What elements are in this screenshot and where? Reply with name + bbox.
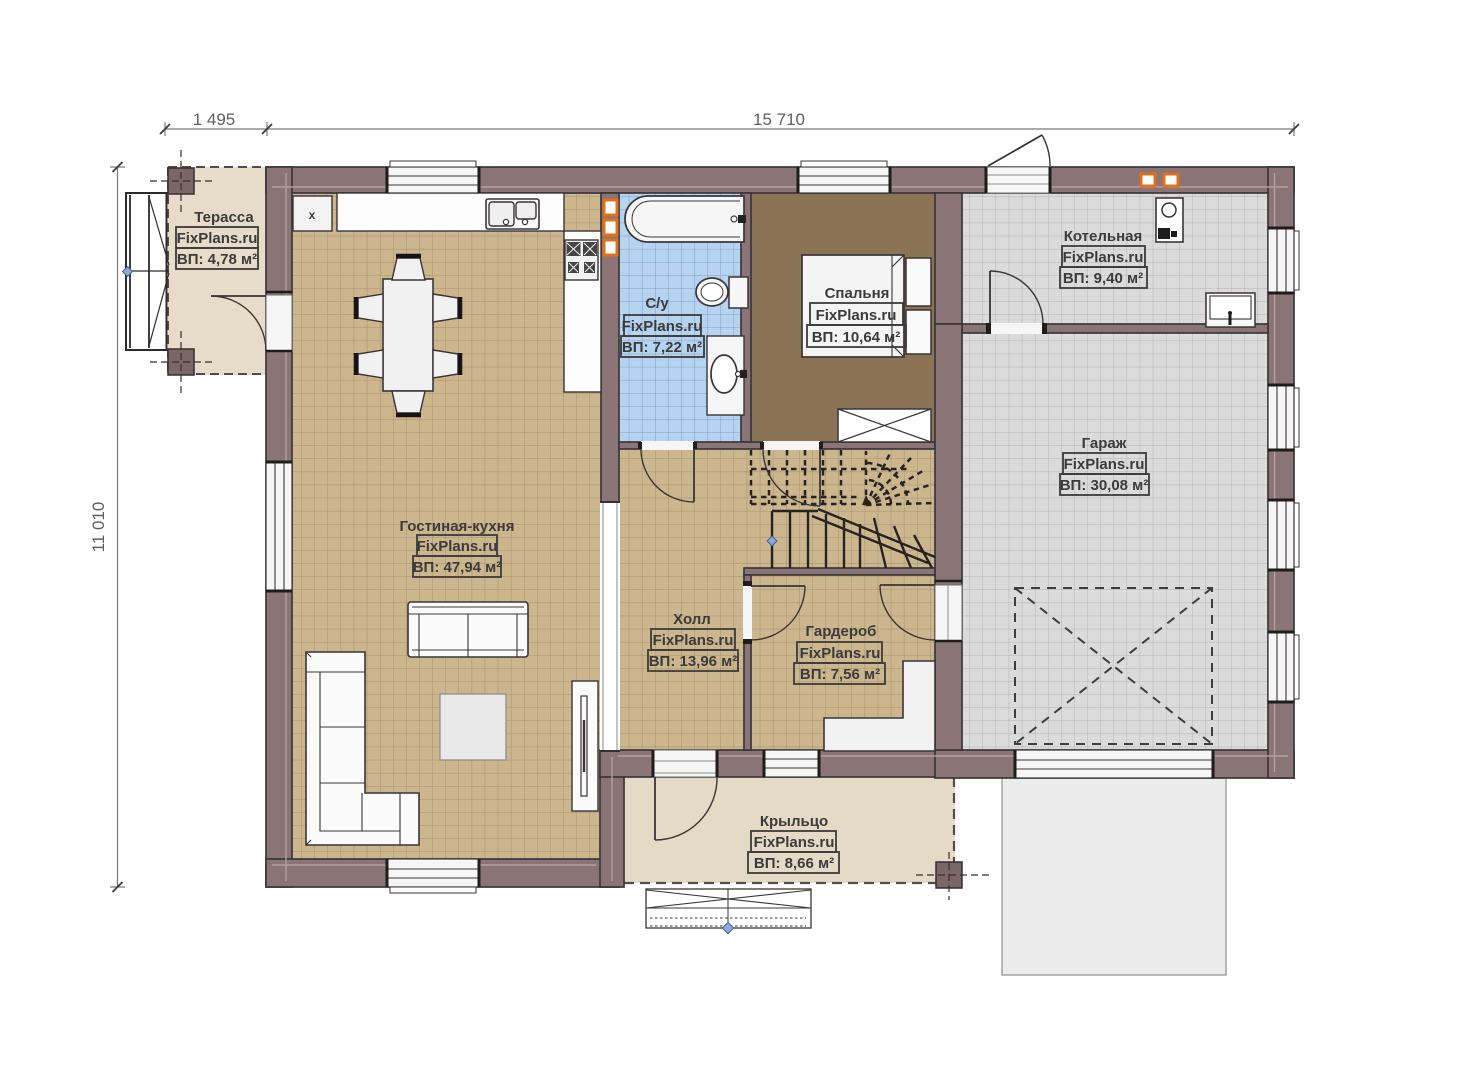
svg-text:ВП: 13,96 м²: ВП: 13,96 м² — [649, 653, 738, 670]
svg-text:FixPlans.ru: FixPlans.ru — [177, 230, 258, 247]
svg-text:FixPlans.ru: FixPlans.ru — [417, 538, 498, 555]
svg-text:С/у: С/у — [645, 295, 669, 312]
svg-text:FixPlans.ru: FixPlans.ru — [800, 645, 881, 662]
svg-text:ВП: 47,94 м²: ВП: 47,94 м² — [413, 559, 502, 576]
svg-text:ВП: 4,78 м²: ВП: 4,78 м² — [177, 251, 257, 268]
svg-text:x: x — [309, 208, 316, 222]
svg-text:ВП: 10,64 м²: ВП: 10,64 м² — [812, 329, 901, 346]
svg-text:Гараж: Гараж — [1082, 435, 1127, 452]
svg-text:11 010: 11 010 — [89, 502, 108, 553]
svg-text:Спальня: Спальня — [825, 285, 890, 302]
svg-text:ВП: 7,56 м²: ВП: 7,56 м² — [800, 666, 880, 683]
svg-text:FixPlans.ru: FixPlans.ru — [1063, 249, 1144, 266]
svg-text:FixPlans.ru: FixPlans.ru — [622, 318, 703, 335]
svg-text:Гардероб: Гардероб — [806, 623, 877, 640]
svg-text:ВП: 9,40 м²: ВП: 9,40 м² — [1063, 270, 1143, 287]
svg-text:Котельная: Котельная — [1064, 228, 1143, 245]
svg-text:FixPlans.ru: FixPlans.ru — [1064, 456, 1145, 473]
svg-text:FixPlans.ru: FixPlans.ru — [754, 834, 835, 851]
svg-text:1 495: 1 495 — [193, 110, 236, 129]
svg-text:ВП: 30,08 м²: ВП: 30,08 м² — [1060, 477, 1149, 494]
svg-text:ВП: 8,66 м²: ВП: 8,66 м² — [754, 855, 834, 872]
svg-text:Холл: Холл — [673, 611, 711, 628]
svg-text:15 710: 15 710 — [753, 110, 805, 129]
svg-text:Крыльцо: Крыльцо — [760, 813, 828, 830]
svg-text:Гостиная-кухня: Гостиная-кухня — [400, 518, 515, 535]
svg-text:Терасса: Терасса — [194, 209, 254, 226]
svg-text:FixPlans.ru: FixPlans.ru — [816, 307, 897, 324]
svg-text:ВП: 7,22 м²: ВП: 7,22 м² — [622, 339, 702, 356]
svg-text:FixPlans.ru: FixPlans.ru — [653, 632, 734, 649]
